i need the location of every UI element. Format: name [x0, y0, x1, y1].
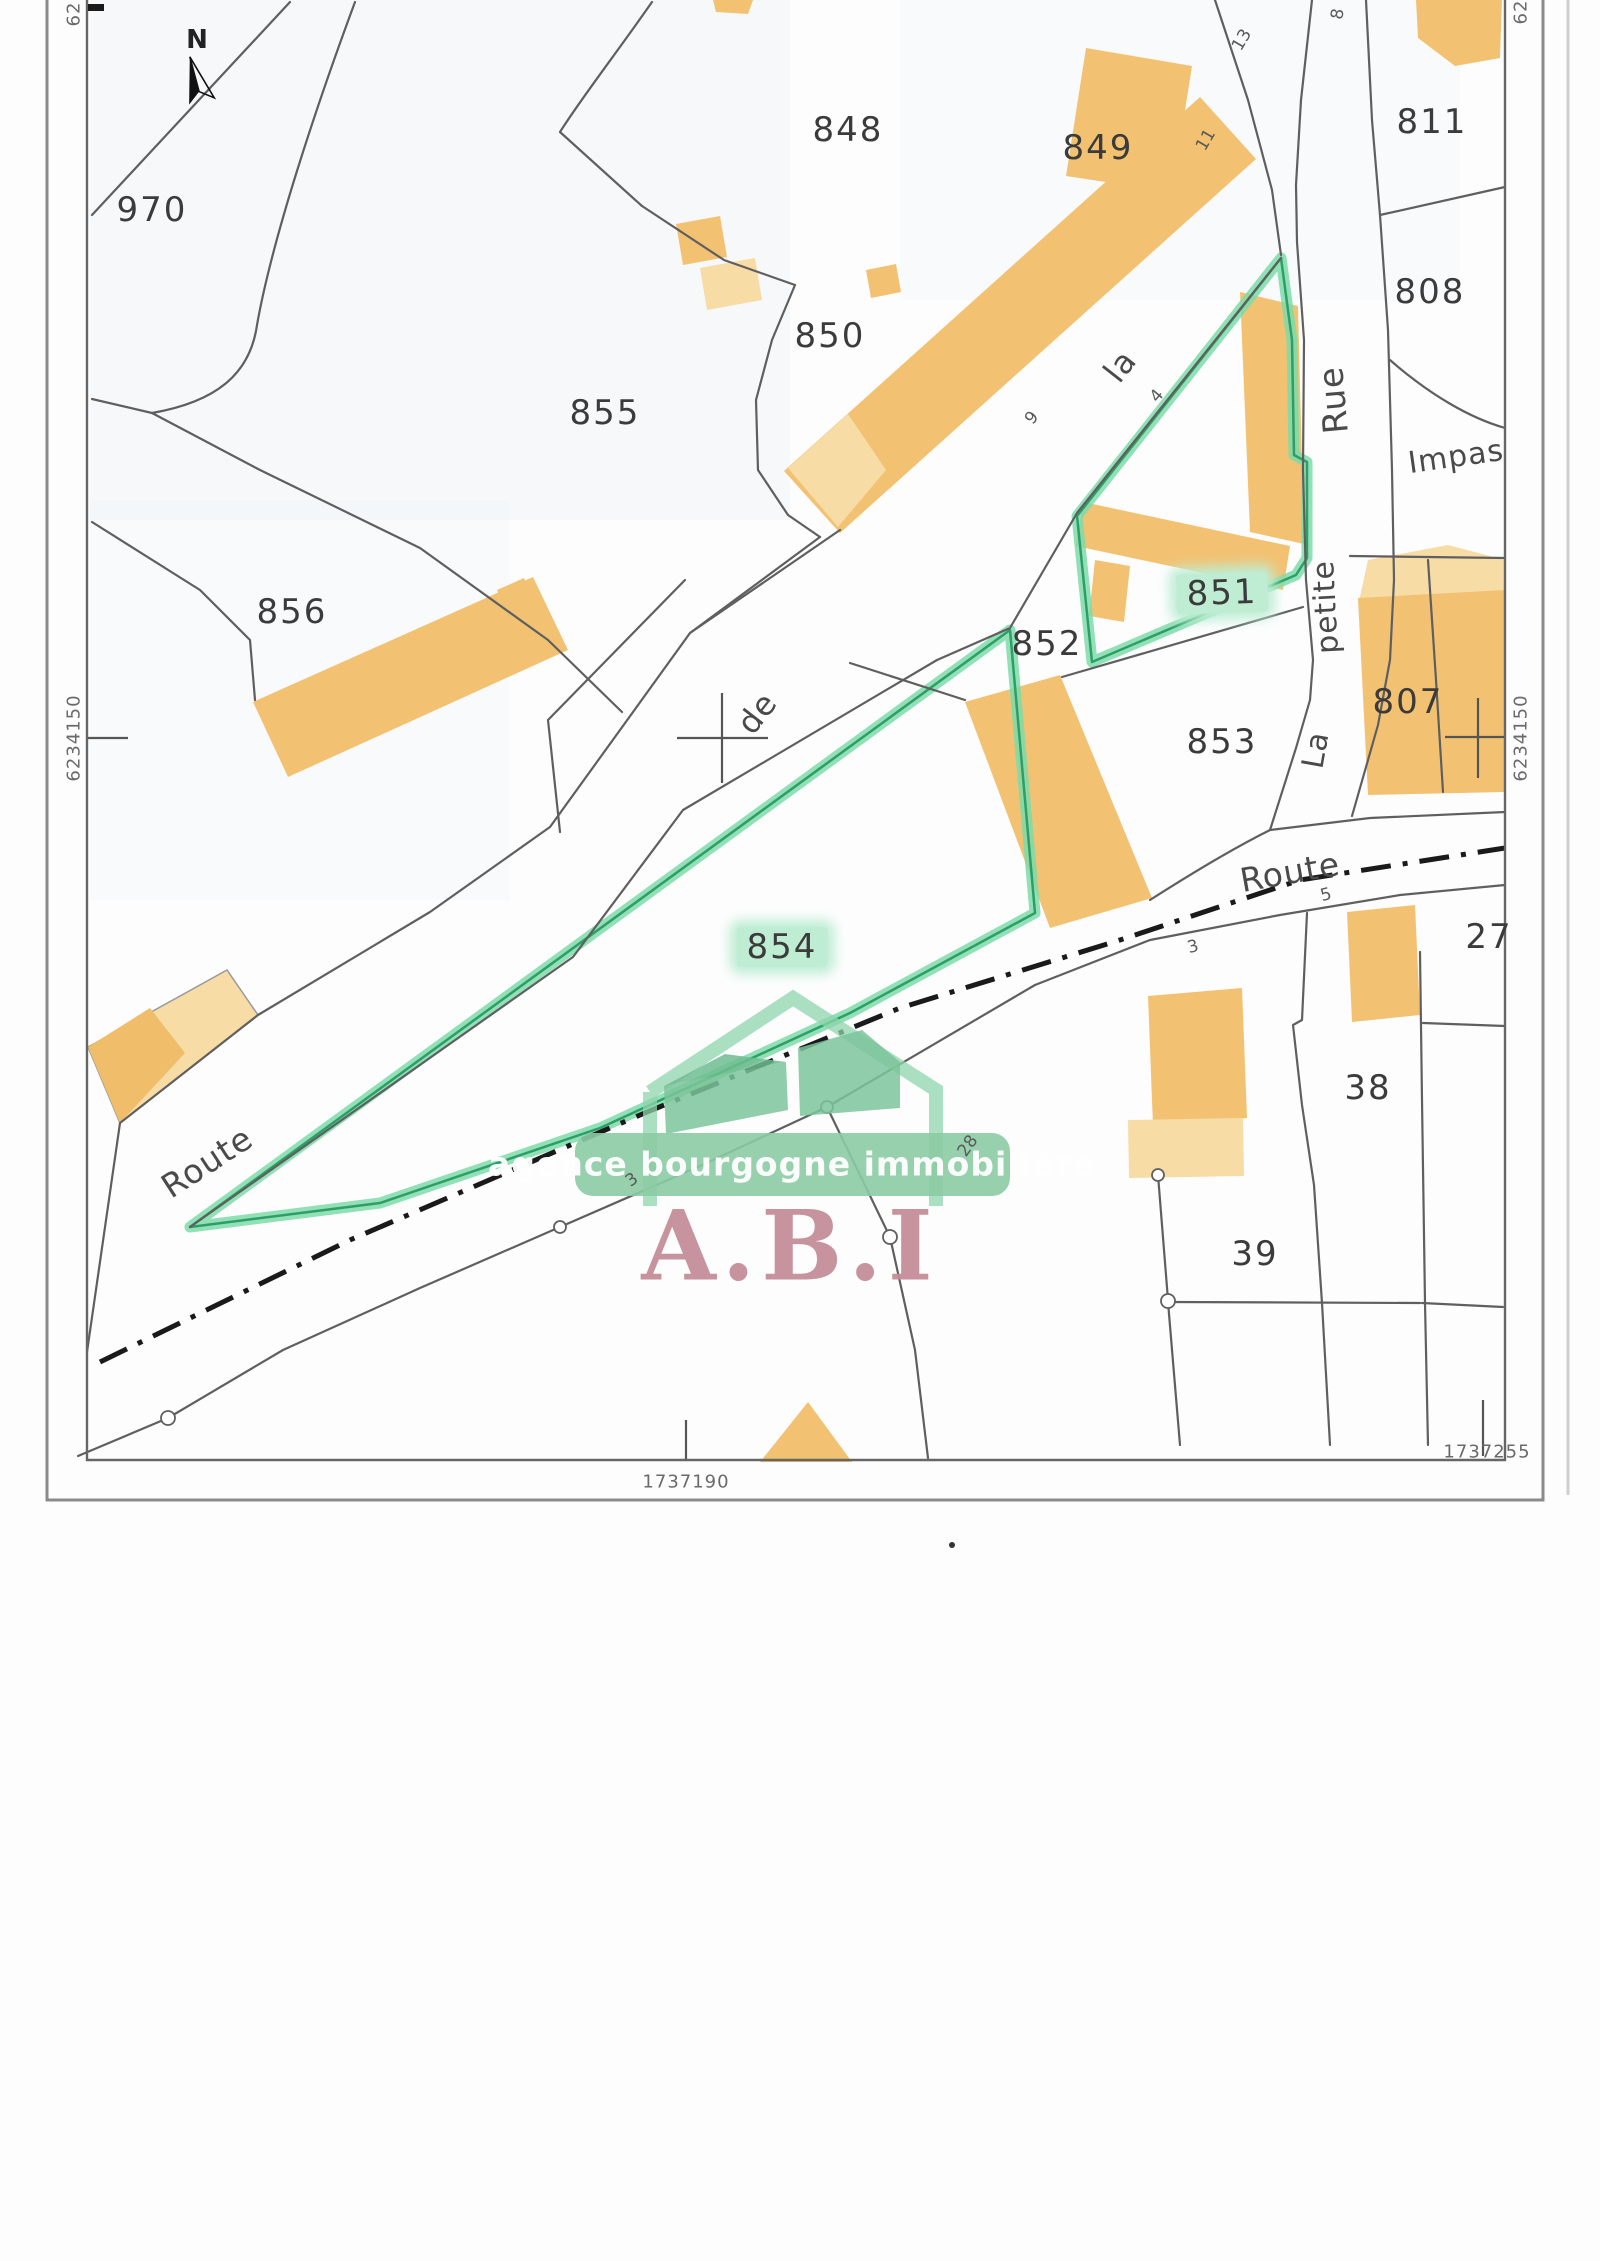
- house-number-hn-9: 9: [1021, 407, 1043, 428]
- street-label-impasse: Impas: [1406, 433, 1506, 481]
- parcel-label-808: 808: [1395, 272, 1466, 312]
- house-number-hn-8: 8: [1327, 7, 1349, 21]
- street-label-petite: petite: [1306, 559, 1346, 655]
- map-labels: N agence bourgogne immobilière A.B.I 970…: [0, 0, 1600, 2261]
- parcel-label-850: 850: [795, 316, 866, 356]
- parcel-label-807: 807: [1373, 682, 1444, 722]
- parcel-label-856: 856: [257, 592, 328, 632]
- grid-label-northing-left: 6234150: [64, 694, 85, 781]
- parcel-label-970: 970: [117, 190, 188, 230]
- street-label-de: de: [729, 685, 785, 741]
- parcel-label-27: 27: [1465, 917, 1512, 957]
- street-label-rue: Rue: [1311, 365, 1357, 436]
- house-number-hn-3: 3: [1185, 936, 1201, 958]
- parcel-label-848: 848: [813, 110, 884, 150]
- grid-label-easting-1737190: 1737190: [642, 1472, 729, 1493]
- grid-label-northing-topright: 62: [1511, 0, 1532, 24]
- street-label-route-1: Route: [154, 1118, 260, 1206]
- street-label-la-2: La: [1296, 729, 1337, 772]
- parcel-label-811: 811: [1397, 102, 1468, 142]
- grid-label-northing-topleft: 62: [64, 2, 85, 27]
- house-number-hn-4: 4: [1146, 385, 1168, 406]
- parcel-label-854: 854: [737, 927, 828, 967]
- logo-acronym: A.B.I: [641, 1190, 938, 1303]
- grid-label-easting-1737255: 1737255: [1443, 1442, 1530, 1463]
- parcel-label-851: 851: [1176, 571, 1268, 614]
- parcel-label-853: 853: [1187, 722, 1258, 762]
- parcel-label-855: 855: [570, 393, 641, 433]
- parcel-label-38: 38: [1344, 1068, 1391, 1108]
- north-label: N: [186, 25, 208, 55]
- house-number-hn-5: 5: [1318, 884, 1334, 906]
- house-number-hn-13: 13: [1228, 26, 1256, 55]
- parcel-label-39: 39: [1231, 1234, 1278, 1274]
- parcel-label-849: 849: [1063, 128, 1134, 168]
- logo-tagline: agence bourgogne immobilière: [488, 1145, 1096, 1184]
- street-label-la: la: [1096, 342, 1145, 389]
- cadastral-map-scan: N agence bourgogne immobilière A.B.I 970…: [0, 0, 1600, 2261]
- parcel-label-852: 852: [1012, 624, 1083, 664]
- grid-label-northing-right: 6234150: [1511, 694, 1532, 781]
- house-number-hn-11: 11: [1192, 126, 1220, 155]
